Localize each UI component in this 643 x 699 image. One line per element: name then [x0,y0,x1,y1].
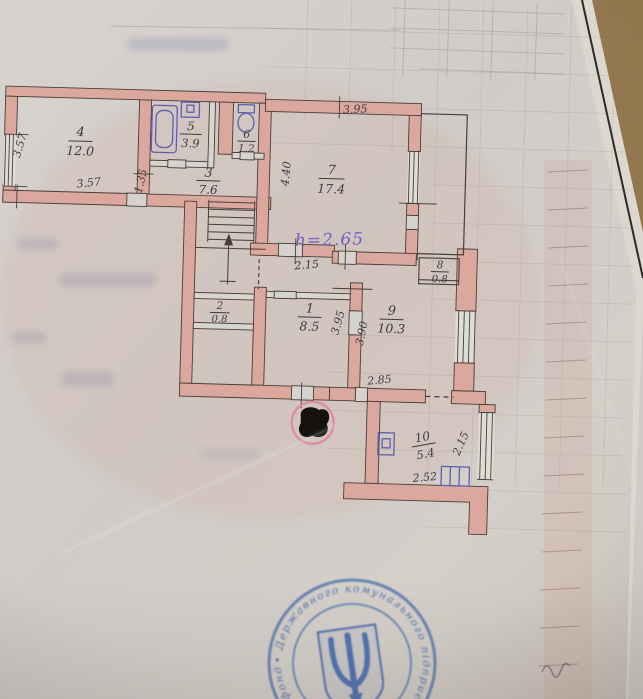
room-6-label: 6 1.2 [237,128,256,155]
bathtub-icon [151,105,177,153]
dim: 4.40 [278,161,293,188]
door-openings [121,148,420,403]
svg-text:9: 9 [387,304,396,319]
dim: 3.95 [329,309,348,336]
window-triple-line [407,151,420,203]
sink-icon [181,102,199,117]
room-7-label: 7 17.4 [317,163,346,197]
svg-text:0.8: 0.8 [432,274,448,285]
svg-text:5.4: 5.4 [415,445,436,462]
height-note: h=2.65 [295,229,365,251]
svg-text:7: 7 [327,163,336,178]
radiator-icon [441,466,470,486]
ink-bleed-smudge [128,38,228,51]
svg-text:1: 1 [305,302,314,317]
room-2-label: 2 0.8 [209,300,230,326]
svg-text:10: 10 [414,429,432,446]
svg-text:5: 5 [187,119,195,133]
svg-text:3: 3 [204,165,212,180]
trident-icon [318,624,387,699]
bleed-pink-column [544,160,592,699]
room-1-label: 1 8.5 [297,301,322,334]
dim: 2.15 [450,430,472,459]
svg-text:1.2: 1.2 [238,143,255,155]
dim: 2.52 [411,470,437,485]
dim: 3.95 [343,102,368,116]
stairs-up-arrow-icon [219,233,236,284]
photographed-floor-plan: 4 12.0 5 3.9 6 1.2 3 7.6 7 [0,0,643,699]
svg-text:17.4: 17.4 [317,181,345,197]
svg-text:8.5: 8.5 [299,318,319,334]
room-number: 4 [75,125,85,140]
room-5-label: 5 3.9 [179,119,202,151]
windows [0,134,502,480]
room-10-label: 10 5.4 [409,428,438,463]
dim: 2.85 [366,373,393,388]
room-8-label: 8 0.8 [431,259,450,285]
floor-plan: 4 12.0 5 3.9 6 1.2 3 7.6 7 [0,84,528,550]
svg-text:0.8: 0.8 [211,314,227,325]
balcony-outline [417,114,467,255]
dim: 2.15 [293,258,319,273]
room-area: 12.0 [66,143,94,159]
svg-text:8: 8 [437,259,444,271]
dim: 3.57 [76,175,102,191]
room-9-label: 9 10.3 [377,304,406,337]
svg-text:2: 2 [215,300,223,312]
window-triple-line [454,311,475,364]
room-3-label: 3 7.6 [196,164,221,197]
svg-text:6: 6 [243,128,250,141]
window-triple-line [477,412,495,479]
seal-stamp: • Державного комунального підприємства •… [253,568,453,699]
room-4-label: 4 12.0 [66,125,95,159]
sink-icon [378,433,395,455]
svg-text:3.9: 3.9 [181,136,200,151]
svg-text:10.3: 10.3 [377,321,405,337]
